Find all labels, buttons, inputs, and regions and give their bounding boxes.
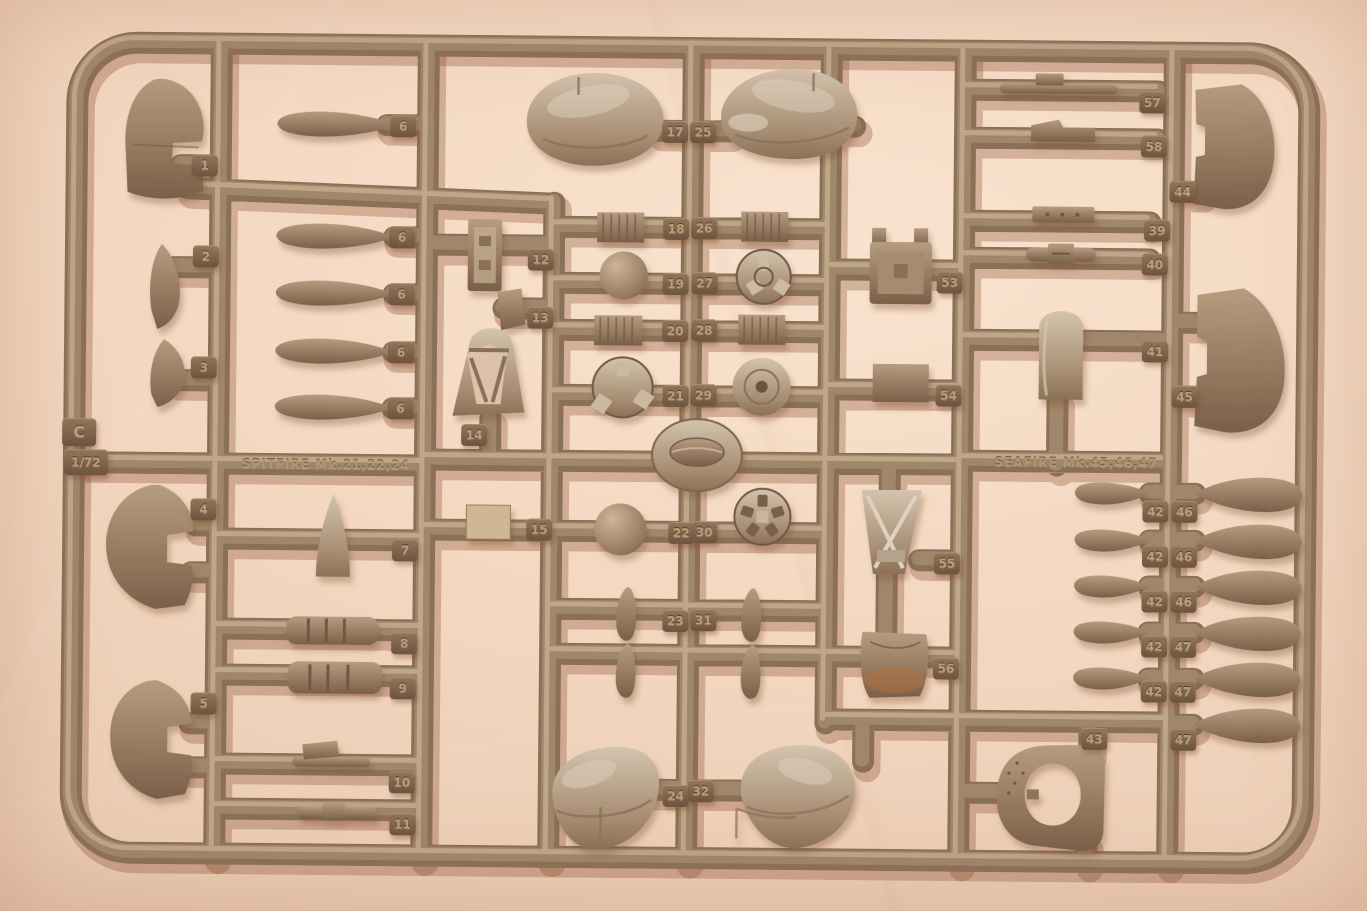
part-disc-29 [732, 357, 791, 416]
part-number-tag: 14 [461, 424, 487, 446]
part-number-tag: 6 [389, 226, 415, 248]
part-number-tag: 24 [663, 785, 689, 807]
sprue-scene: C 1/72 SPITFIRE Mk.21,22,24 SEAFIRE Mk.4… [0, 0, 1367, 911]
part-strip-58 [1031, 119, 1095, 142]
part-number-tag: 47 [1170, 636, 1196, 658]
part-number-tag: 15 [526, 518, 552, 540]
part-hub-27 [736, 250, 791, 305]
part-rudder-4 [105, 484, 193, 609]
part-number-tag: 26 [691, 217, 717, 239]
scale-tag: 1/72 [64, 449, 108, 475]
part-radiator-28 [738, 315, 785, 345]
part-number-tag: 10 [389, 771, 415, 793]
part-number-tag: 42 [1141, 635, 1167, 657]
part-number-tag: 57 [1139, 91, 1165, 113]
part-number-tag: 30 [691, 521, 717, 543]
part-number-tag: 23 [662, 610, 688, 632]
part-number-tag: 13 [527, 306, 553, 328]
part-hub-30 [734, 488, 791, 545]
part-frame-43 [996, 744, 1105, 851]
part-number-tag: 25 [690, 121, 716, 143]
part-number-tag: 58 [1141, 135, 1167, 157]
part-tail-fin [125, 78, 205, 199]
part-number-tag: 44 [1169, 181, 1195, 203]
part-ball-19 [599, 251, 647, 299]
part-number-tag: 53 [937, 271, 963, 293]
part-lever-10 [292, 740, 370, 767]
part-block-13 [497, 288, 525, 330]
part-box-53 [869, 228, 932, 305]
part-number-tag: 4 [190, 498, 216, 520]
part-number-tag: 19 [663, 273, 689, 295]
spitfire-bar-label: SPITFIRE Mk.21,22,24 [228, 456, 424, 474]
part-number-tag: 47 [1170, 681, 1196, 703]
part-number-tag: 2 [193, 245, 219, 267]
part-number-tag: 42 [1141, 680, 1167, 702]
frame-letter-tag: C [62, 418, 96, 446]
part-number-tag: 46 [1171, 501, 1197, 523]
part-number-tag: 42 [1142, 500, 1168, 522]
part-prop-blades-46-47 [1193, 477, 1302, 743]
part-prop-blades-42 [1073, 482, 1150, 690]
photo-backdrop: C 1/72 SPITFIRE Mk.21,22,24 SEAFIRE Mk.4… [0, 0, 1367, 911]
part-number-tag: 45 [1171, 386, 1197, 408]
part-number-tag: 6 [388, 341, 414, 363]
part-cowling-25 [721, 68, 858, 159]
seafire-bar-label: SEAFIRE Mk.45,46,47 [986, 454, 1166, 472]
part-exhaust-8 [286, 616, 378, 645]
part-number-tag: 1 [192, 154, 218, 176]
part-center-disc [652, 419, 743, 492]
part-number-tag: 18 [663, 218, 689, 240]
part-number-tag: 21 [662, 385, 688, 407]
part-prop-blades-6 [275, 111, 396, 420]
part-number-tag: 6 [387, 397, 413, 419]
part-number-tag: 56 [933, 657, 959, 679]
part-seat-56 [860, 632, 928, 699]
part-number-tag: 27 [692, 272, 718, 294]
part-number-tag: 11 [389, 813, 415, 835]
part-number-tag: 7 [392, 539, 418, 561]
part-number-tag: 12 [528, 248, 554, 270]
part-radiator-20 [594, 315, 642, 345]
part-radiator-18 [597, 212, 644, 242]
part-number-tag: 9 [390, 677, 416, 699]
part-number-tag: 46 [1171, 591, 1197, 613]
part-cowling-17 [526, 72, 664, 166]
part-number-tag: 46 [1171, 546, 1197, 568]
part-plate-15 [466, 505, 510, 539]
part-number-tag: 55 [934, 552, 960, 574]
part-number-tag: 40 [1142, 253, 1168, 275]
part-number-tag: 29 [690, 384, 716, 406]
part-rudder-5 [110, 680, 193, 800]
part-plate-54 [873, 364, 929, 403]
part-number-tag: 54 [935, 384, 961, 406]
part-instrument-panel-12 [468, 219, 503, 291]
part-number-tag: 42 [1142, 545, 1168, 567]
part-rudder-45 [1194, 288, 1285, 433]
part-number-tag: 31 [690, 609, 716, 631]
part-number-tag: 5 [190, 692, 216, 714]
part-number-tag: 28 [691, 319, 717, 341]
part-rudder-44 [1193, 84, 1275, 210]
part-number-tag: 17 [662, 121, 688, 143]
part-exhaust-9 [288, 661, 382, 694]
part-hub-21 [590, 357, 655, 418]
part-rail-40 [1026, 243, 1096, 264]
part-number-tag: 39 [1144, 219, 1170, 241]
part-spinner-7 [316, 493, 351, 576]
part-canopy-frame-14 [452, 328, 525, 417]
part-number-tag: 32 [688, 780, 714, 802]
part-ball-22 [594, 503, 646, 555]
part-number-tag: 6 [390, 115, 416, 137]
part-number-tag: 8 [391, 632, 417, 654]
part-number-tag: 43 [1081, 728, 1107, 750]
part-number-tag: 20 [662, 320, 688, 342]
part-number-tag: 3 [191, 356, 217, 378]
part-plate-39 [1032, 206, 1094, 223]
part-number-tag: 42 [1142, 590, 1168, 612]
part-radiator-26 [741, 212, 788, 242]
part-cowling-24 [552, 746, 660, 850]
part-intake-41 [1039, 311, 1084, 400]
part-cowling-32 [736, 744, 855, 848]
part-number-tag: 6 [388, 283, 414, 305]
part-number-tag: 41 [1142, 340, 1168, 362]
part-number-tag: 47 [1170, 729, 1196, 751]
